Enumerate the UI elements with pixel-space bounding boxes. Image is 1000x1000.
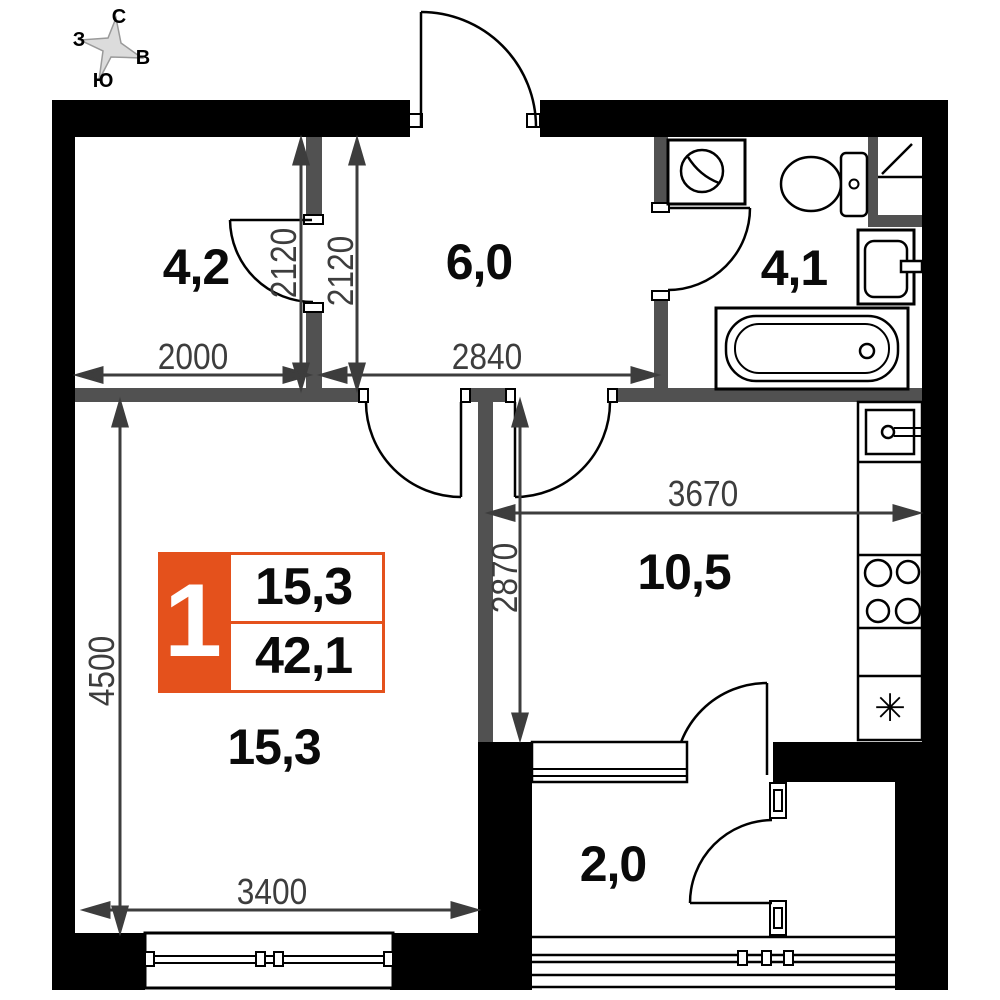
unit-living-area: 15,3 [231,555,382,624]
toilet [781,153,867,216]
room-label-hallway: 6,0 [394,236,564,288]
dim-closet-width: 2000 [131,339,254,375]
floor-plan: С З В Ю 4,2 6,0 4,1 10,5 15,3 2,0 2000 2… [0,0,1000,1000]
unit-info-badge: 1 15,3 42,1 [158,552,385,693]
room-label-bathroom: 4,1 [709,242,879,294]
dim-living-width: 3400 [210,874,333,910]
room-label-living-room: 15,3 [189,721,359,773]
kitchen-door [515,402,610,497]
room-label-closet: 4,2 [111,241,281,293]
kitchen-balcony-window [532,742,687,782]
living-room-window [145,933,393,988]
entrance-door [421,12,536,127]
dim-kitchen-depth: 2870 [487,516,523,639]
unit-areas: 15,3 42,1 [228,552,385,693]
compass-east-label: В [131,47,155,69]
dim-living-depth: 4500 [84,609,120,732]
plan-linework [0,0,1000,1000]
balcony-glazing [532,937,895,987]
dim-closet-depth: 2120 [266,201,302,324]
balcony-door [675,683,767,775]
balcony-partition-door [690,820,772,903]
washing-machine [668,140,745,204]
room-label-kitchen: 10,5 [599,546,769,598]
unit-number: 1 [158,552,228,693]
dim-hallway-width: 2840 [425,339,548,375]
compass-west-label: З [67,29,91,51]
living-room-door [366,402,461,497]
unit-total-area: 42,1 [231,624,382,690]
fridge-icon: ✳ [868,687,912,731]
vent-shaft [878,144,922,177]
dim-hallway-depth: 2120 [323,209,359,332]
kitchen-sink [866,410,922,454]
bathtub [716,308,908,389]
compass-south-label: Ю [91,70,115,92]
compass-north-label: С [107,6,131,28]
room-label-balcony: 2,0 [528,838,698,890]
dim-kitchen-width: 3670 [641,476,764,512]
